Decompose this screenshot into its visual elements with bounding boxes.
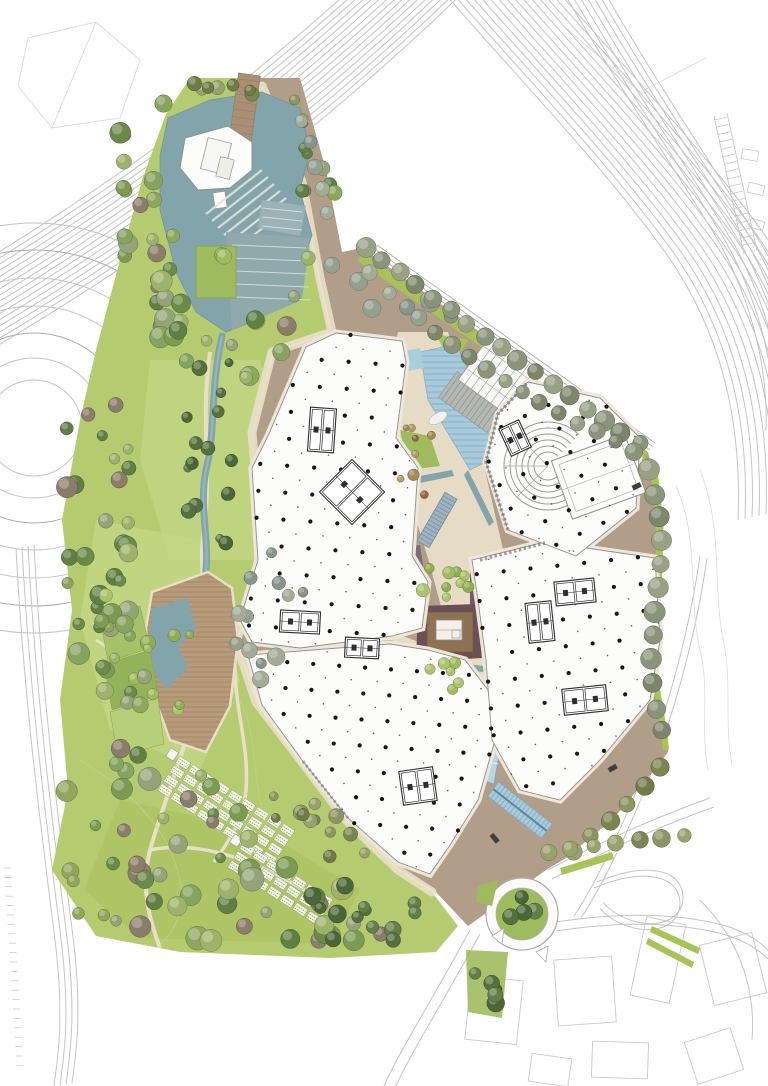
column-dot	[523, 414, 527, 418]
column-dot	[331, 575, 335, 579]
column-dot-minor	[271, 699, 273, 701]
tree-highlight	[621, 797, 629, 805]
tree-highlight	[401, 301, 409, 309]
tree-highlight	[428, 432, 432, 436]
column-dot-minor	[297, 506, 299, 508]
tree-highlight	[171, 836, 180, 845]
tree-highlight	[299, 588, 304, 593]
column-dot	[636, 555, 640, 559]
column-dot	[383, 606, 387, 610]
tree-highlight	[443, 593, 447, 597]
tree-highlight	[157, 310, 168, 321]
tree-highlight	[404, 425, 407, 428]
tree-highlight	[649, 701, 658, 710]
tree-highlight	[360, 849, 365, 854]
column-dot	[582, 561, 586, 565]
column-dot	[309, 688, 313, 692]
column-dot	[387, 552, 391, 556]
column-dot-minor	[371, 758, 373, 760]
column-dot-minor	[404, 657, 406, 659]
tree-highlight	[140, 769, 152, 781]
column-dot-minor	[520, 609, 522, 611]
column-dot-minor	[518, 583, 520, 585]
tree-highlight	[529, 365, 537, 373]
column-dot-minor	[400, 708, 402, 710]
tree-highlight	[70, 644, 81, 655]
column-dot	[612, 585, 616, 589]
column-dot-minor	[496, 639, 498, 641]
column-dot-minor	[499, 666, 501, 668]
column-dot-minor	[508, 747, 510, 749]
column-dot-minor	[425, 736, 427, 738]
tree-highlight	[270, 792, 275, 797]
column-dot	[561, 617, 565, 621]
column-dot	[603, 463, 607, 467]
tree-highlight	[202, 931, 213, 942]
column-dot	[537, 647, 541, 651]
column-dot	[363, 665, 367, 669]
column-dot	[516, 704, 520, 708]
column-dot	[518, 730, 522, 734]
tree-highlight	[209, 809, 215, 815]
tree-highlight	[609, 836, 617, 844]
tree-highlight	[78, 549, 87, 558]
column-dot-minor	[571, 577, 573, 579]
column-dot-minor	[343, 618, 345, 620]
column-dot-minor	[345, 591, 347, 593]
column-dot	[395, 444, 399, 448]
column-dot-minor	[360, 375, 362, 377]
tree-highlight	[612, 424, 622, 434]
core-group	[525, 601, 555, 643]
column-dot-minor	[369, 784, 371, 786]
column-dot-minor	[345, 757, 347, 759]
column-dot	[509, 507, 513, 511]
column-dot-minor	[551, 503, 553, 505]
column-dot	[551, 781, 555, 785]
tree-highlight	[154, 868, 161, 875]
column-dot	[578, 532, 582, 536]
tree-highlight	[516, 892, 523, 899]
column-dot-minor	[324, 677, 326, 679]
tree-highlight	[330, 906, 339, 915]
context-building-outline	[566, 28, 706, 92]
column-dot-minor	[343, 783, 345, 785]
highway-lane-line	[576, 0, 768, 434]
tree-highlight	[118, 230, 126, 238]
core-group	[562, 685, 608, 715]
column-dot-minor	[397, 622, 399, 624]
column-dot-minor	[409, 460, 411, 462]
column-dot-minor	[375, 707, 377, 709]
column-dot	[461, 751, 465, 755]
column-dot	[590, 497, 594, 501]
tree-highlight	[144, 645, 148, 649]
column-dot-minor	[535, 744, 537, 746]
column-dot-minor	[574, 492, 576, 494]
tree-highlight	[181, 355, 188, 362]
tree-highlight	[310, 799, 316, 805]
column-dot	[441, 671, 445, 675]
tree-highlight	[164, 263, 171, 270]
tree-highlight	[463, 350, 471, 358]
tree-highlight	[153, 272, 164, 283]
tree-highlight	[393, 264, 402, 273]
tree-highlight	[242, 869, 254, 881]
column-dot	[615, 612, 619, 616]
column-dot	[328, 629, 332, 633]
column-dot	[389, 667, 393, 671]
tree-highlight	[58, 782, 69, 793]
ramp-rung	[717, 132, 730, 135]
column-dot	[348, 333, 352, 337]
column-dot	[531, 593, 535, 597]
column-dot-minor	[417, 840, 419, 842]
column-dot-minor	[576, 434, 578, 436]
column-dot-minor	[305, 399, 307, 401]
column-dot	[555, 564, 559, 568]
column-dot	[282, 712, 286, 716]
column-dot-minor	[326, 651, 328, 653]
tree-highlight	[375, 253, 384, 262]
core-group	[307, 407, 336, 453]
tree-highlight	[368, 922, 374, 928]
column-dot	[276, 598, 280, 602]
tree-highlight	[110, 454, 115, 459]
core-group	[344, 637, 379, 659]
column-dot	[337, 664, 341, 668]
tree-highlight	[417, 584, 424, 591]
column-dot	[370, 415, 374, 419]
ramp-rung	[716, 124, 729, 127]
column-dot-minor	[562, 527, 564, 529]
tree-highlight	[257, 659, 262, 664]
tree-highlight	[98, 431, 103, 436]
tree-highlight	[115, 576, 121, 582]
tree-highlight	[412, 451, 416, 455]
tree-highlight	[653, 759, 662, 768]
column-dot	[463, 725, 467, 729]
tree-highlight	[386, 922, 394, 930]
column-dot	[492, 733, 496, 737]
ramp-rung	[725, 169, 738, 172]
tree-highlight	[112, 124, 122, 134]
tree-highlight	[193, 362, 201, 370]
tree-highlight	[298, 809, 304, 815]
column-dot	[545, 728, 549, 732]
column-dot	[639, 582, 643, 586]
column-dot	[554, 543, 558, 547]
tree-highlight	[517, 386, 524, 393]
column-dot-minor	[601, 601, 603, 603]
column-dot	[617, 639, 621, 643]
tree-highlight	[444, 302, 453, 311]
tree-highlight	[305, 889, 314, 898]
column-dot	[311, 662, 315, 666]
tree-highlight	[148, 193, 156, 201]
column-dot-minor	[362, 348, 364, 350]
column-dot	[489, 726, 493, 730]
column-dot-minor	[402, 682, 404, 684]
column-dot	[572, 725, 576, 729]
tree-highlight	[653, 532, 663, 542]
tree-highlight	[267, 548, 272, 553]
column-dot-minor	[399, 734, 401, 736]
column-dot	[312, 466, 316, 470]
column-dot	[385, 719, 389, 723]
tree-highlight	[325, 851, 331, 857]
core-group	[554, 578, 596, 606]
column-dot-minor	[480, 688, 482, 690]
tree-highlight	[590, 424, 598, 432]
tree-highlight	[189, 77, 196, 84]
tree-highlight	[169, 630, 175, 636]
tree-highlight	[149, 245, 158, 254]
column-dot-minor	[303, 425, 305, 427]
tree-highlight	[645, 675, 655, 685]
context-block	[699, 932, 766, 1005]
column-dot-minor	[274, 451, 276, 453]
tree-highlight	[220, 537, 227, 544]
column-dot-minor	[416, 866, 418, 868]
column-dot	[366, 469, 370, 473]
tree-highlight	[241, 372, 247, 378]
sunken-courtyard	[427, 612, 473, 652]
tree-highlight	[581, 403, 589, 411]
tree-highlight	[218, 250, 226, 258]
column-dot	[389, 525, 393, 529]
context-block	[554, 956, 616, 1026]
column-dot	[489, 706, 493, 710]
column-dot	[465, 699, 469, 703]
column-dot	[521, 757, 525, 761]
column-dot	[359, 717, 363, 721]
tree-highlight	[633, 833, 641, 841]
tree-highlight	[213, 407, 219, 413]
column-dot-minor	[319, 755, 321, 757]
tree-highlight	[148, 689, 154, 695]
tree-highlight	[494, 339, 503, 348]
tree-highlight	[142, 636, 150, 644]
column-dot	[258, 462, 262, 466]
tree-highlight	[480, 362, 489, 371]
tree-highlight	[359, 902, 365, 908]
column-dot	[487, 459, 491, 463]
column-dot	[486, 679, 490, 683]
tree-highlight	[61, 423, 68, 430]
column-dot-minor	[347, 564, 349, 566]
column-dot-minor	[628, 598, 630, 600]
tree-highlight	[220, 880, 230, 890]
column-dot-minor	[523, 636, 525, 638]
tree-highlight	[408, 277, 417, 286]
column-dot	[439, 697, 443, 701]
column-dot-minor	[320, 562, 322, 564]
column-dot-minor	[333, 374, 335, 376]
column-dot-minor	[541, 421, 543, 423]
tree-highlight	[204, 779, 213, 788]
column-dot	[545, 461, 549, 465]
column-dot-minor	[636, 679, 638, 681]
column-dot	[413, 695, 417, 699]
column-dot	[502, 569, 506, 573]
column-dot	[382, 633, 386, 637]
tree-highlight	[98, 684, 107, 693]
column-dot	[356, 769, 360, 773]
tree-highlight	[338, 878, 346, 886]
tree-highlight	[413, 436, 416, 439]
column-dot-minor	[445, 816, 447, 818]
tree-highlight	[132, 917, 143, 928]
column-dot	[556, 485, 560, 489]
column-dot-minor	[389, 350, 391, 352]
tree-highlight	[384, 287, 391, 294]
column-dot	[330, 602, 334, 606]
tree-highlight	[421, 491, 425, 495]
context-block	[591, 1041, 648, 1079]
column-dot-minor	[451, 738, 453, 740]
tree-highlight	[654, 831, 663, 840]
column-dot-minor	[529, 690, 531, 692]
tree-highlight	[327, 933, 335, 941]
column-dot	[287, 437, 291, 441]
tree-highlight	[273, 577, 280, 584]
column-dot	[568, 450, 572, 454]
column-dot-minor	[612, 708, 614, 710]
column-dot-minor	[526, 663, 528, 665]
highway-lane-line	[608, 0, 768, 442]
column-dot	[393, 471, 397, 475]
column-dot-minor	[563, 469, 565, 471]
ramp-rung	[714, 117, 727, 120]
column-dot-minor	[373, 733, 375, 735]
tree-highlight	[358, 239, 368, 249]
column-dot-minor	[374, 566, 376, 568]
column-dot-minor	[295, 727, 297, 729]
column-dot-minor	[401, 568, 403, 570]
column-dot-minor	[306, 372, 308, 374]
tree-highlight	[409, 898, 416, 905]
column-dot-minor	[347, 731, 349, 733]
column-dot	[412, 581, 416, 585]
tree-highlight	[272, 814, 277, 819]
tree-highlight	[111, 654, 116, 659]
tree-highlight	[108, 569, 117, 578]
column-dot-minor	[561, 741, 563, 743]
column-dot	[623, 692, 627, 696]
tree-highlight	[426, 291, 435, 300]
column-dot-minor	[634, 652, 636, 654]
column-dot	[475, 572, 479, 576]
column-dot	[345, 387, 349, 391]
tree-highlight	[278, 858, 289, 869]
column-dot	[415, 669, 419, 673]
column-dot	[341, 440, 345, 444]
column-dot	[435, 749, 439, 753]
column-dot-minor	[475, 766, 477, 768]
column-dot-minor	[293, 560, 295, 562]
column-dot-minor	[261, 639, 263, 641]
ramp-rung	[720, 147, 733, 150]
tree-highlight	[238, 919, 246, 927]
tree-highlight	[126, 687, 132, 693]
tree-highlight	[242, 831, 251, 840]
column-dot-minor	[399, 595, 401, 597]
tree-highlight	[139, 670, 146, 677]
tree-highlight	[470, 968, 476, 974]
column-dot-minor	[542, 553, 544, 555]
tree-highlight	[603, 813, 612, 822]
tree-highlight	[351, 274, 360, 283]
context-building-outline	[18, 22, 140, 128]
column-dot	[335, 690, 339, 694]
column-dot-minor	[387, 377, 389, 379]
column-dot-minor	[382, 458, 384, 460]
tree-highlight	[231, 638, 238, 645]
masterplan-svg	[0, 0, 768, 1086]
context-building-outline	[747, 182, 765, 196]
column-dot-minor	[488, 559, 490, 561]
tree-highlight	[409, 470, 415, 476]
column-dot-minor	[385, 404, 387, 406]
tree-highlight	[454, 678, 459, 683]
tree-highlight	[63, 578, 69, 584]
tree-highlight	[134, 698, 142, 706]
tree-highlight	[99, 910, 105, 916]
column-dot-minor	[376, 539, 378, 541]
tree-highlight	[130, 857, 139, 866]
tree-highlight	[176, 701, 181, 706]
tree-highlight	[248, 312, 257, 321]
tree-highlight	[113, 780, 124, 791]
tree-highlight	[112, 916, 118, 922]
tree-highlight	[208, 817, 214, 823]
tree-highlight	[108, 858, 115, 865]
column-dot	[285, 464, 289, 468]
column-dot	[283, 491, 287, 495]
column-dot-minor	[625, 571, 627, 573]
column-dot	[498, 483, 502, 487]
column-dot-minor	[609, 505, 611, 507]
column-dot-minor	[494, 443, 496, 445]
column-dot	[346, 360, 350, 364]
column-dot	[437, 723, 441, 727]
column-dot	[398, 390, 402, 394]
column-dot	[542, 701, 546, 705]
column-dot-minor	[349, 705, 351, 707]
tree-highlight	[562, 387, 572, 397]
tree-highlight	[231, 805, 240, 814]
tree-highlight	[460, 317, 468, 325]
tree-highlight	[97, 661, 104, 668]
column-dot	[360, 550, 364, 554]
column-dot-minor	[263, 612, 265, 614]
tree-highlight	[289, 291, 295, 297]
column-dot	[409, 747, 413, 751]
tree-highlight	[283, 590, 289, 596]
column-dot-minor	[393, 812, 395, 814]
tree-highlight	[187, 631, 191, 635]
column-dot	[355, 631, 359, 635]
column-dot	[385, 579, 389, 583]
column-dot-minor	[556, 687, 558, 689]
tree-highlight	[113, 473, 121, 481]
column-dot-minor	[326, 481, 328, 483]
tree-highlight	[478, 329, 487, 338]
tree-highlight	[68, 876, 74, 882]
tree-highlight	[571, 417, 578, 424]
contour-line	[676, 486, 708, 770]
